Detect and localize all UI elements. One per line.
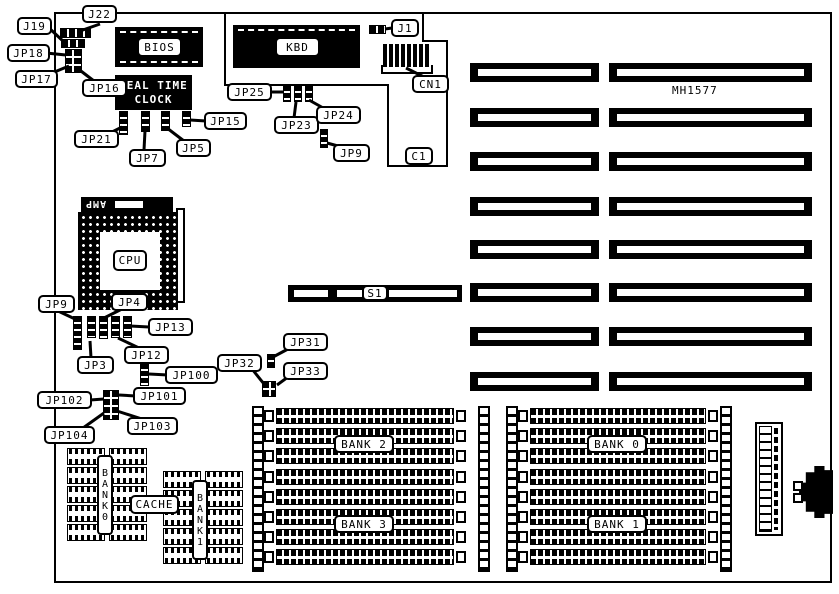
simm-group-left-clip — [264, 450, 274, 462]
cpu-socket-lever — [176, 208, 185, 303]
simm-group-left-clip — [264, 491, 274, 503]
s1-stripe — [337, 290, 362, 297]
callout-cn1: CN1 — [412, 75, 449, 93]
callout-jp9-left: JP9 — [38, 295, 75, 313]
callout-bank2: BANK 2 — [334, 435, 394, 453]
simm-group-right-clip — [708, 551, 718, 563]
slot-contact-stripe — [617, 333, 804, 340]
callout-jp13: JP13 — [148, 318, 193, 336]
simm-group-right-socket-8 — [530, 549, 706, 565]
callout-j1: J1 — [391, 19, 419, 37]
callout-jp32: JP32 — [217, 354, 262, 372]
jp101-jumper-block — [103, 390, 119, 420]
cpu-socket-amp-bar: AMP — [81, 197, 173, 212]
simm-group-right-clip — [518, 450, 528, 462]
slot-contact-stripe — [478, 203, 591, 210]
callout-jp104: JP104 — [44, 426, 95, 444]
cache-sram-chip — [205, 509, 243, 526]
simm-group-left-clip — [264, 471, 274, 483]
simm-group-left-socket-1 — [276, 408, 454, 424]
jp9-top-jumper — [320, 129, 328, 148]
callout-jp23: JP23 — [274, 116, 319, 134]
callout-bank0: BANK 0 — [587, 435, 647, 453]
cache-sram-chip — [205, 490, 243, 507]
callout-jp102: JP102 — [37, 391, 92, 409]
callout-cpu: CPU — [113, 250, 147, 271]
simm-group-right-clip — [518, 511, 528, 523]
slot-contact-stripe — [478, 333, 591, 340]
callout-jp103: JP103 — [127, 417, 178, 435]
isa-slot-left-3 — [470, 152, 599, 171]
slot-contact-stripe — [478, 246, 591, 253]
cache-sram-chip — [109, 467, 147, 484]
jp25-jumper-1 — [283, 85, 291, 102]
simm-group-right-clip — [708, 450, 718, 462]
callout-jp3: JP3 — [77, 356, 114, 374]
simm-group-left-rail-right — [478, 406, 490, 572]
jp25-jumper-3 — [305, 85, 313, 102]
simm-group-left-clip — [456, 511, 466, 523]
j1-jumper — [369, 25, 386, 34]
simm-group-left-clip — [264, 551, 274, 563]
isa-slot-right-8 — [609, 372, 812, 391]
isa-slot-right-2 — [609, 108, 812, 127]
cn1-connector-pins — [383, 44, 431, 67]
power-connector-pins — [759, 426, 772, 532]
jp31-jumper — [267, 354, 275, 368]
isa-slot-left-8 — [470, 372, 599, 391]
simm-group-right-clip — [518, 551, 528, 563]
board-model-text: MH1577 — [672, 84, 718, 97]
callout-jp17: JP17 — [15, 70, 58, 88]
simm-group-right-clip — [708, 430, 718, 442]
simm-group-left-clip — [264, 531, 274, 543]
slot-contact-stripe — [617, 289, 804, 296]
callout-jp100: JP100 — [165, 366, 218, 384]
isa-slot-left-6 — [470, 283, 599, 302]
jp15-jumper — [182, 111, 191, 127]
callout-cache-bank1-vertical: BANK1 — [192, 480, 208, 560]
motherboard-diagram: REAL TIME CLOCK AMP MH1577 J22J19JP18JP1… — [0, 0, 839, 594]
power-connector-key — [774, 428, 778, 530]
simm-group-left-clip — [456, 531, 466, 543]
jp33-jumper-block — [262, 381, 276, 397]
callout-bank3: BANK 3 — [334, 515, 394, 533]
simm-group-right-clip — [518, 430, 528, 442]
amp-bar-slot — [115, 201, 143, 208]
simm-group-right-clip — [518, 531, 528, 543]
isa-slot-right-5 — [609, 240, 812, 259]
s1-stripe — [389, 290, 457, 297]
callout-kbd: KBD — [275, 37, 320, 57]
cache-sram-chip — [109, 524, 147, 541]
j22-header — [60, 28, 91, 38]
kbd-chip-notch — [238, 29, 355, 31]
slot-contact-stripe — [617, 203, 804, 210]
slot-contact-stripe — [478, 158, 591, 165]
callout-jp4: JP4 — [111, 293, 148, 311]
slot-contact-stripe — [617, 69, 804, 76]
jp9-left-jumper — [73, 316, 82, 350]
isa-slot-left-4 — [470, 197, 599, 216]
simm-group-right-clip — [708, 491, 718, 503]
callout-jp16: JP16 — [82, 79, 127, 97]
callout-s1: S1 — [362, 285, 388, 301]
bios-chip-notch-bottom — [120, 61, 198, 63]
simm-group-right-clip — [708, 531, 718, 543]
isa-slot-right-6 — [609, 283, 812, 302]
simm-group-left-clip — [264, 410, 274, 422]
jp16-jumper-block — [65, 49, 82, 73]
jp12-jumper — [99, 316, 108, 339]
simm-group-left-clip — [264, 430, 274, 442]
simm-group-right-rail-left — [506, 406, 518, 572]
simm-group-right-clip — [518, 410, 528, 422]
simm-group-right-socket-1 — [530, 408, 706, 424]
simm-group-right-clip — [708, 410, 718, 422]
callout-jp18: JP18 — [7, 44, 50, 62]
jp100-jumper — [140, 363, 149, 386]
slot-contact-stripe — [617, 378, 804, 385]
callout-j22: J22 — [82, 5, 117, 23]
isa-slot-left-1 — [470, 63, 599, 82]
amp-brand-text: AMP — [85, 198, 106, 209]
isa-slot-left-5 — [470, 240, 599, 259]
callout-jp101: JP101 — [133, 387, 186, 405]
simm-group-right-clip — [708, 511, 718, 523]
slot-contact-stripe — [478, 378, 591, 385]
simm-group-left-rail-left — [252, 406, 264, 572]
simm-group-left-socket-8 — [276, 549, 454, 565]
jp5-jumper — [161, 111, 170, 131]
callout-c1: C1 — [405, 147, 433, 165]
simm-group-left-clip — [456, 551, 466, 563]
slot-contact-stripe — [478, 289, 591, 296]
callout-jp25: JP25 — [227, 83, 272, 101]
simm-group-left-clip — [456, 491, 466, 503]
simm-group-left-socket-4 — [276, 469, 454, 485]
j19-header — [61, 39, 85, 48]
isa-slot-right-1 — [609, 63, 812, 82]
isa-slot-left-2 — [470, 108, 599, 127]
callout-j19: J19 — [17, 17, 52, 35]
cache-sram-chip — [205, 471, 243, 488]
callout-cache-bank0-vertical: BANK0 — [97, 455, 113, 535]
simm-group-right-socket-5 — [530, 489, 706, 505]
slot-contact-stripe — [617, 158, 804, 165]
jp13-jumper-a — [111, 316, 120, 338]
jp21-jumper — [119, 111, 128, 135]
slot-contact-stripe — [478, 114, 591, 121]
callout-jp21: JP21 — [74, 130, 119, 148]
simm-group-left-clip — [456, 471, 466, 483]
simm-group-left-clip — [456, 430, 466, 442]
s1-stripe — [294, 290, 328, 297]
callout-bank1: BANK 1 — [587, 515, 647, 533]
jp13-jumper-b — [123, 316, 132, 338]
slot-contact-stripe — [478, 69, 591, 76]
callout-jp15: JP15 — [204, 112, 247, 130]
simm-group-right-clip — [518, 471, 528, 483]
simm-group-right-rail-right — [720, 406, 732, 572]
isa-slot-right-7 — [609, 327, 812, 346]
keyboard-connector-pin — [793, 493, 803, 503]
rtc-label-line2: CLOCK — [115, 93, 192, 107]
simm-group-left-clip — [264, 511, 274, 523]
bios-chip-notch — [120, 31, 198, 33]
slot-contact-stripe — [617, 246, 804, 253]
jp7-jumper — [141, 111, 150, 132]
power-connector — [755, 422, 783, 536]
callout-jp33: JP33 — [283, 362, 328, 380]
simm-group-right-clip — [518, 491, 528, 503]
callout-jp5: JP5 — [176, 139, 211, 157]
jp25-jumper-2 — [294, 85, 302, 102]
callout-jp24: JP24 — [316, 106, 361, 124]
simm-group-left-socket-5 — [276, 489, 454, 505]
callout-bios: BIOS — [137, 37, 182, 57]
simm-group-right-clip — [708, 471, 718, 483]
callout-jp31: JP31 — [283, 333, 328, 351]
simm-group-left-clip — [456, 410, 466, 422]
callout-cache: CACHE — [130, 495, 179, 514]
cache-sram-chip — [205, 547, 243, 564]
isa-slot-right-4 — [609, 197, 812, 216]
slot-contact-stripe — [617, 114, 804, 121]
isa-slot-right-3 — [609, 152, 812, 171]
cache-sram-chip — [205, 528, 243, 545]
keyboard-connector-pin — [793, 481, 803, 491]
simm-group-left-clip — [456, 450, 466, 462]
jp3-jumper — [87, 316, 96, 338]
simm-group-right-socket-4 — [530, 469, 706, 485]
callout-jp9-top: JP9 — [333, 144, 370, 162]
isa-slot-left-7 — [470, 327, 599, 346]
cache-sram-chip — [109, 448, 147, 465]
callout-jp12: JP12 — [124, 346, 169, 364]
callout-jp7: JP7 — [129, 149, 166, 167]
